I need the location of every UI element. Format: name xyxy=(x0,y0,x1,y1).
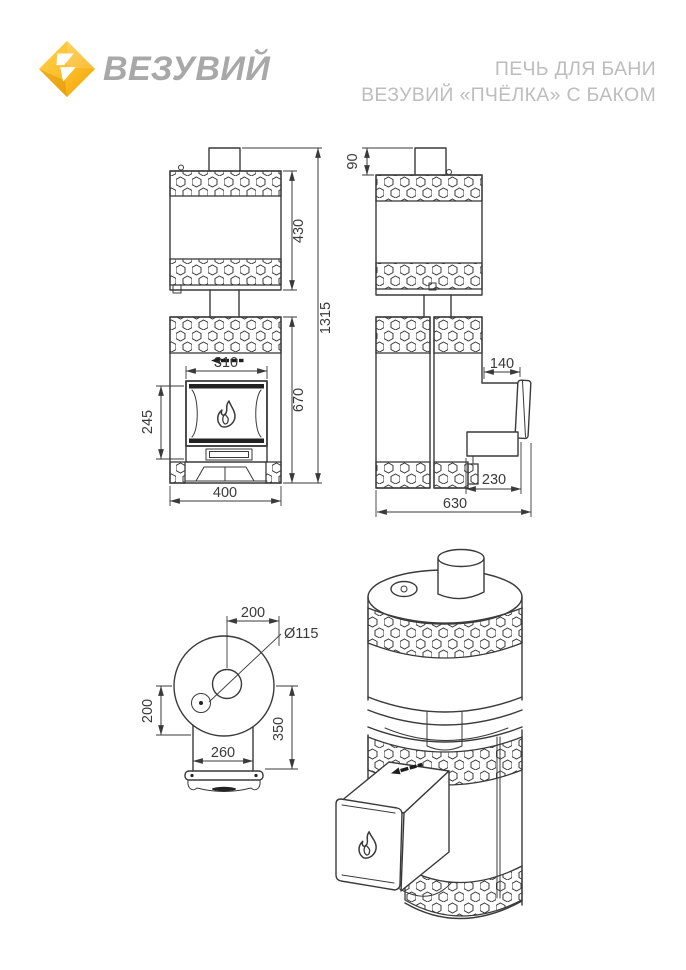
isometric-view-drawing xyxy=(336,550,522,919)
dim-door-width: 310 xyxy=(214,355,238,371)
dim-door-height: 245 xyxy=(140,410,156,434)
dim-total-depth: 630 xyxy=(443,496,467,512)
dim-body-height: 670 xyxy=(291,388,307,412)
dim-tank-height: 430 xyxy=(291,219,307,243)
tank-tap-boss xyxy=(173,285,181,293)
chimney-pipe-side xyxy=(415,148,446,175)
drawing-canvas: 430 670 1315 310 245 400 xyxy=(0,0,686,970)
stove-top-outline xyxy=(174,636,274,736)
technical-drawing-page: ВЕЗУВИЙ ПЕЧЬ ДЛЯ БАНИ ВЕЗУВИЙ «ПЧЁЛКА» С… xyxy=(0,0,686,970)
tank-vent xyxy=(179,165,184,170)
top-view-drawing: 200 Ø115 200 350 260 xyxy=(140,605,318,792)
dim-axis-offset: 200 xyxy=(140,699,156,723)
dim-base-width: 400 xyxy=(213,485,237,501)
dim-chimney-offset: 200 xyxy=(241,605,265,621)
chimney-pipe xyxy=(209,148,240,171)
flame-icon xyxy=(218,401,235,427)
filler-cap-3d xyxy=(391,582,417,597)
chimney-stub-3d xyxy=(438,550,484,567)
front-view-drawing: 430 670 1315 310 245 400 xyxy=(140,148,334,506)
dim-chimney-diameter: Ø115 xyxy=(284,626,318,642)
dim-tunnel-width: 260 xyxy=(211,745,235,761)
dim-tunnel-top: 140 xyxy=(490,356,514,372)
side-view-drawing: 90 140 xyxy=(345,148,531,517)
dim-total-height: 1315 xyxy=(318,302,334,334)
dim-chimney-stub: 90 xyxy=(345,153,361,169)
dim-tunnel-length: 350 xyxy=(271,717,287,741)
dim-tunnel-depth: 230 xyxy=(482,472,506,488)
door-flange xyxy=(185,771,263,780)
